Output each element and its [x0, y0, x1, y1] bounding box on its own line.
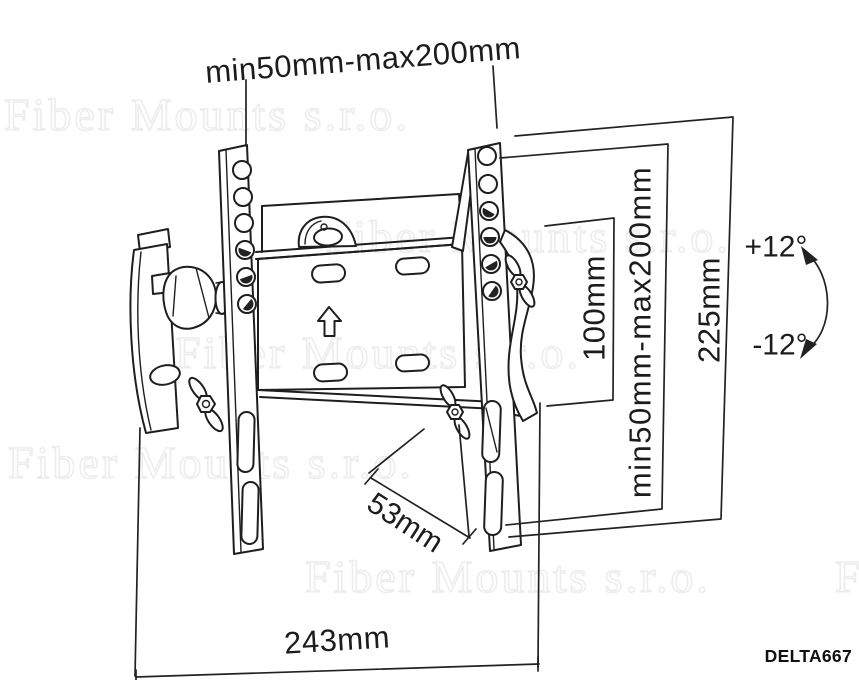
- leader-line: [493, 66, 497, 128]
- dim-100mm-label: 100mm: [577, 255, 612, 361]
- tension-knob: [163, 267, 216, 329]
- bracket-hole: [234, 188, 252, 206]
- bracket-hole: [233, 161, 251, 179]
- extension-line: [459, 425, 469, 536]
- dim-top-span-label: min50mm-max200mm: [204, 30, 522, 90]
- diagram-canvas: Fiber Mounts s.r.o. Fiber Mounts s.r.o. …: [0, 0, 859, 680]
- wing-nut-hex: [511, 275, 527, 289]
- bracket-oval-slot: [484, 472, 503, 536]
- plate-slot: [396, 354, 430, 372]
- dim-53mm-label: 53mm: [361, 486, 449, 559]
- mount-diagram-svg: min50mm-max200mm 100mm min50mm-max200mm …: [0, 0, 859, 680]
- bracket-hole: [478, 147, 496, 165]
- up-arrow-icon: [318, 307, 341, 336]
- dimension-labels: min50mm-max200mm 100mm min50mm-max200mm …: [204, 30, 852, 666]
- dim-vesa-range-label: min50mm-max200mm: [623, 166, 658, 498]
- left-arm-assembly: [130, 145, 263, 554]
- bracket-oval-slot: [237, 412, 255, 472]
- extension-line: [135, 428, 140, 676]
- plate-slot: [311, 264, 345, 283]
- wall-plate-top-rail: [256, 237, 463, 252]
- dim-tick: [463, 529, 476, 544]
- wing-nut-hex: [447, 405, 463, 419]
- wing-nut-hex: [197, 396, 215, 412]
- tilt-down-label: -12°: [752, 329, 807, 362]
- right-arm-assembly: [438, 143, 538, 551]
- dim-243mm-label: 243mm: [283, 619, 391, 660]
- dim-225mm-label: 225mm: [692, 257, 727, 363]
- tilt-up-label: +12°: [745, 231, 808, 264]
- plate-slot: [314, 363, 348, 382]
- extension-line: [538, 403, 540, 667]
- plate-slot: [395, 257, 429, 275]
- model-code-label: DELTA667: [765, 646, 852, 666]
- wall-plate-back-edge: [262, 194, 462, 238]
- bracket-hole: [479, 175, 497, 193]
- wall-plate-bottom-rail: [260, 397, 516, 410]
- extension-line: [369, 429, 424, 473]
- bracket-hole: [235, 214, 253, 232]
- dim-line-243mm: [136, 664, 539, 677]
- wall-plate-bottom-rail: [258, 390, 516, 403]
- bracket-oval-slot: [241, 482, 259, 544]
- wall-plate-face: [258, 244, 465, 390]
